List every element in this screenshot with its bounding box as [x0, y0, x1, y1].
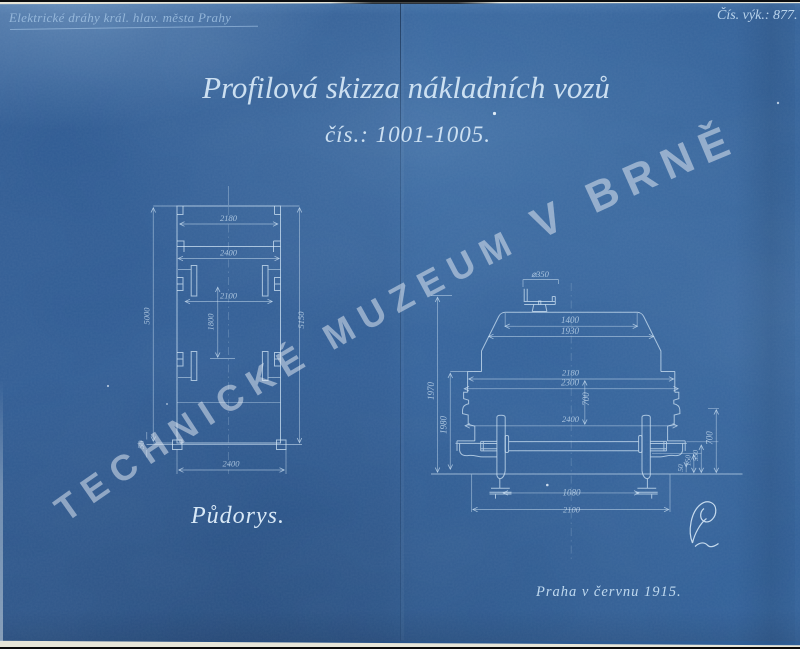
svg-text:TECHNICKÉ MUZEUM V BRNĚ: TECHNICKÉ MUZEUM V BRNĚ — [47, 117, 737, 529]
